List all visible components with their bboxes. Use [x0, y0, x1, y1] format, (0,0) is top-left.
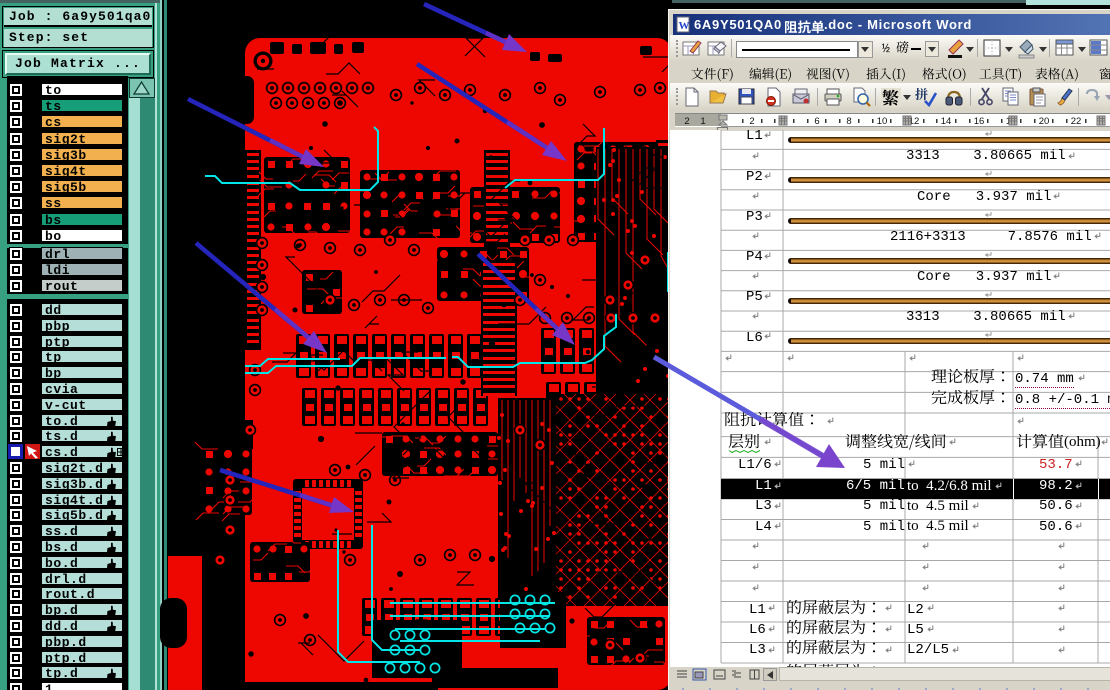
- svg-text:2: 2: [684, 116, 689, 127]
- svg-text:20: 20: [1039, 116, 1050, 127]
- svg-text:6: 6: [814, 116, 819, 127]
- svg-text:10: 10: [877, 116, 888, 127]
- svg-text:8: 8: [846, 116, 851, 127]
- svg-text:2: 2: [749, 116, 754, 127]
- svg-text:W: W: [679, 20, 690, 32]
- svg-text:14: 14: [941, 116, 952, 127]
- svg-text:1: 1: [700, 116, 705, 127]
- svg-text:16: 16: [974, 116, 985, 127]
- svg-text:22: 22: [1071, 116, 1082, 127]
